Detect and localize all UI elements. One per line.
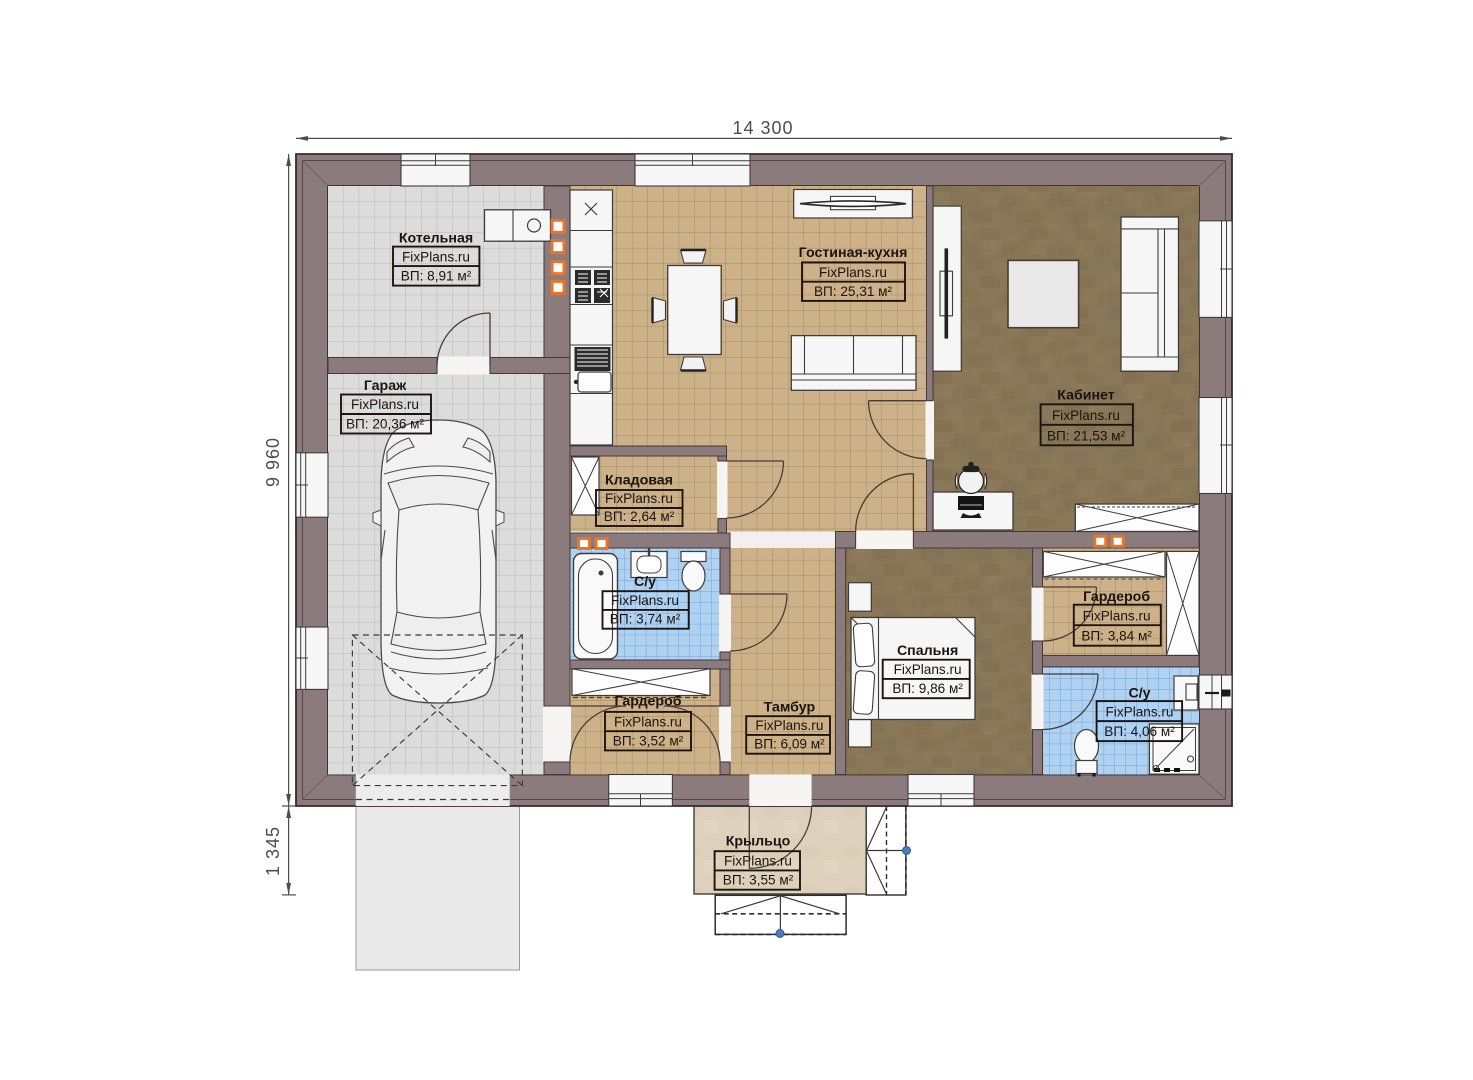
svg-text:ВП: 9,86 м²: ВП: 9,86 м² bbox=[892, 681, 963, 696]
svg-text:FixPlans.ru: FixPlans.ru bbox=[1106, 704, 1174, 719]
svg-text:ВП: 3,55 м²: ВП: 3,55 м² bbox=[723, 873, 794, 888]
svg-text:FixPlans.ru: FixPlans.ru bbox=[1083, 608, 1151, 623]
svg-text:Кабинет: Кабинет bbox=[1057, 388, 1114, 404]
svg-text:FixPlans.ru: FixPlans.ru bbox=[605, 491, 673, 506]
svg-text:14 300: 14 300 bbox=[732, 118, 793, 138]
svg-text:9 960: 9 960 bbox=[263, 437, 283, 487]
svg-text:Гардероб: Гардероб bbox=[1083, 589, 1150, 605]
svg-text:ВП: 8,91 м²: ВП: 8,91 м² bbox=[401, 269, 472, 284]
svg-text:ВП: 3,52 м²: ВП: 3,52 м² bbox=[613, 733, 684, 748]
svg-text:ВП: 20,36 м²: ВП: 20,36 м² bbox=[346, 417, 425, 432]
svg-text:Гостиная-кухня: Гостиная-кухня bbox=[799, 245, 908, 261]
svg-text:Тамбур: Тамбур bbox=[764, 700, 816, 716]
svg-text:Спальня: Спальня bbox=[897, 643, 958, 659]
svg-text:ВП: 3,84 м²: ВП: 3,84 м² bbox=[1081, 629, 1152, 644]
svg-text:ВП: 3,74 м²: ВП: 3,74 м² bbox=[610, 612, 681, 627]
svg-text:Гараж: Гараж bbox=[364, 378, 407, 394]
svg-text:Гардероб: Гардероб bbox=[614, 694, 681, 710]
svg-text:С/у: С/у bbox=[634, 574, 656, 590]
svg-text:ВП: 2,64 м²: ВП: 2,64 м² bbox=[604, 509, 675, 524]
svg-text:С/у: С/у bbox=[1128, 686, 1150, 702]
svg-text:ВП: 25,31 м²: ВП: 25,31 м² bbox=[814, 284, 893, 299]
svg-text:FixPlans.ru: FixPlans.ru bbox=[402, 249, 470, 264]
svg-text:FixPlans.ru: FixPlans.ru bbox=[351, 397, 419, 412]
svg-text:FixPlans.ru: FixPlans.ru bbox=[894, 662, 962, 677]
svg-text:Крыльцо: Крыльцо bbox=[726, 834, 791, 850]
svg-text:Кладовая: Кладовая bbox=[605, 473, 673, 489]
svg-text:ВП: 6,09 м²: ВП: 6,09 м² bbox=[754, 737, 825, 752]
svg-text:FixPlans.ru: FixPlans.ru bbox=[611, 593, 679, 608]
svg-text:ВП: 21,53 м²: ВП: 21,53 м² bbox=[1047, 428, 1126, 443]
svg-text:FixPlans.ru: FixPlans.ru bbox=[1052, 408, 1120, 423]
svg-text:Котельная: Котельная bbox=[399, 231, 473, 247]
svg-text:FixPlans.ru: FixPlans.ru bbox=[724, 854, 792, 869]
svg-text:FixPlans.ru: FixPlans.ru bbox=[614, 714, 682, 729]
svg-text:1 345: 1 345 bbox=[263, 826, 283, 876]
svg-text:ВП: 4,06 м²: ВП: 4,06 м² bbox=[1104, 724, 1175, 739]
svg-text:FixPlans.ru: FixPlans.ru bbox=[819, 265, 887, 280]
svg-text:FixPlans.ru: FixPlans.ru bbox=[755, 718, 823, 733]
